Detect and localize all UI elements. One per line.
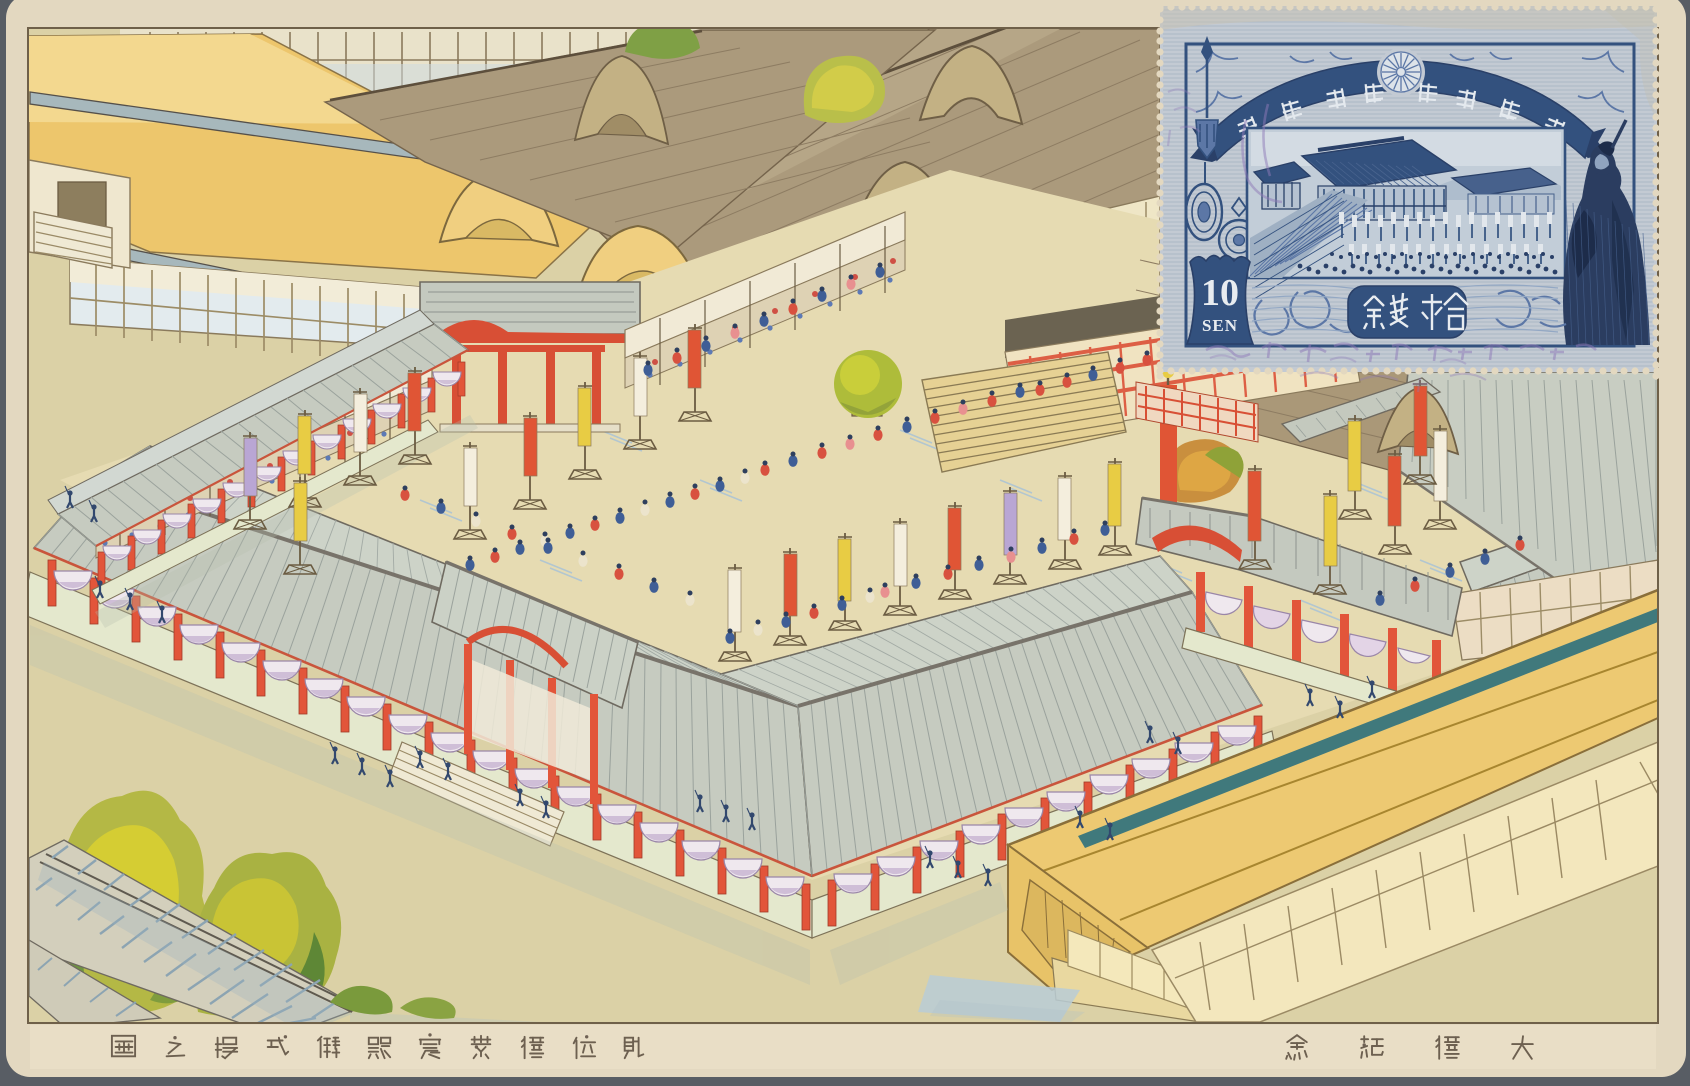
svg-text:10: 10 — [1201, 272, 1239, 314]
svg-text:SEN: SEN — [1202, 316, 1238, 335]
